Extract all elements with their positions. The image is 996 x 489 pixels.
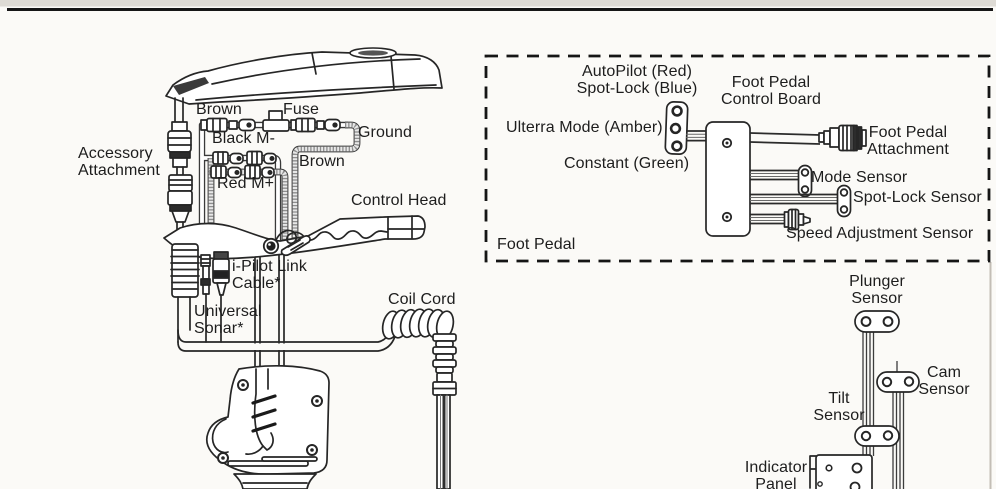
label-indicator-panel: Indicator Panel: [726, 459, 826, 489]
label-ulterra-mode: Ulterra Mode (Amber): [506, 119, 663, 136]
label-cam-sensor: Cam Sensor: [894, 364, 994, 398]
label-ground: Ground: [358, 124, 412, 141]
control-board: [706, 122, 750, 236]
head-knob: [264, 239, 278, 253]
label-speed-adjustment-sensor: Speed Adjustment Sensor: [786, 225, 973, 242]
label-mode-sensor: Mode Sensor: [811, 169, 907, 186]
label-control-head: Control Head: [351, 192, 446, 209]
plunger-sensor-bracket: [855, 311, 899, 332]
label-red-m-plus: Red M+: [217, 175, 274, 192]
accessory-attachment-connectors: [168, 98, 192, 236]
label-foot-pedal-control-board: Foot Pedal Control Board: [696, 74, 846, 108]
page-top-edge: [0, 0, 996, 10]
label-fuse: Fuse: [283, 101, 319, 118]
label-brown-top: Brown: [196, 101, 242, 118]
tilt-sensor-bracket: [855, 426, 899, 446]
label-foot-pedal-attachment: Foot Pedal Attachment: [833, 124, 983, 158]
label-plunger-sensor: Plunger Sensor: [827, 273, 927, 307]
label-ipilot-link-cable: i-Pilot Link Cable*: [232, 258, 307, 292]
label-constant: Constant (Green): [564, 155, 689, 172]
label-accessory-attachment: Accessory Attachment: [78, 145, 160, 179]
coil-cord-drawing: [380, 308, 456, 489]
coil-cord-connector: [433, 334, 456, 489]
label-universal-sonar: Universal Sonar*: [194, 303, 262, 337]
motor-top-housing: [166, 48, 442, 104]
label-autopilot-spotlock: AutoPilot (Red) Spot-Lock (Blue): [557, 63, 717, 97]
label-black-m-minus: Black M-: [212, 130, 275, 147]
label-coil-cord: Coil Cord: [388, 291, 456, 308]
spotlock-sensor-bracket: [838, 186, 851, 217]
diagram-page: Accessory Attachment Brown Fuse Black M-…: [0, 0, 996, 489]
label-foot-pedal: Foot Pedal: [497, 236, 575, 253]
label-spotlock-sensor: Spot-Lock Sensor: [853, 189, 982, 206]
led-board: [665, 102, 688, 155]
mode-sensor-bracket: [799, 166, 812, 197]
label-brown-right: Brown: [299, 153, 345, 170]
label-tilt-sensor: Tilt Sensor: [789, 390, 889, 424]
lower-motor-housing: [207, 366, 329, 489]
